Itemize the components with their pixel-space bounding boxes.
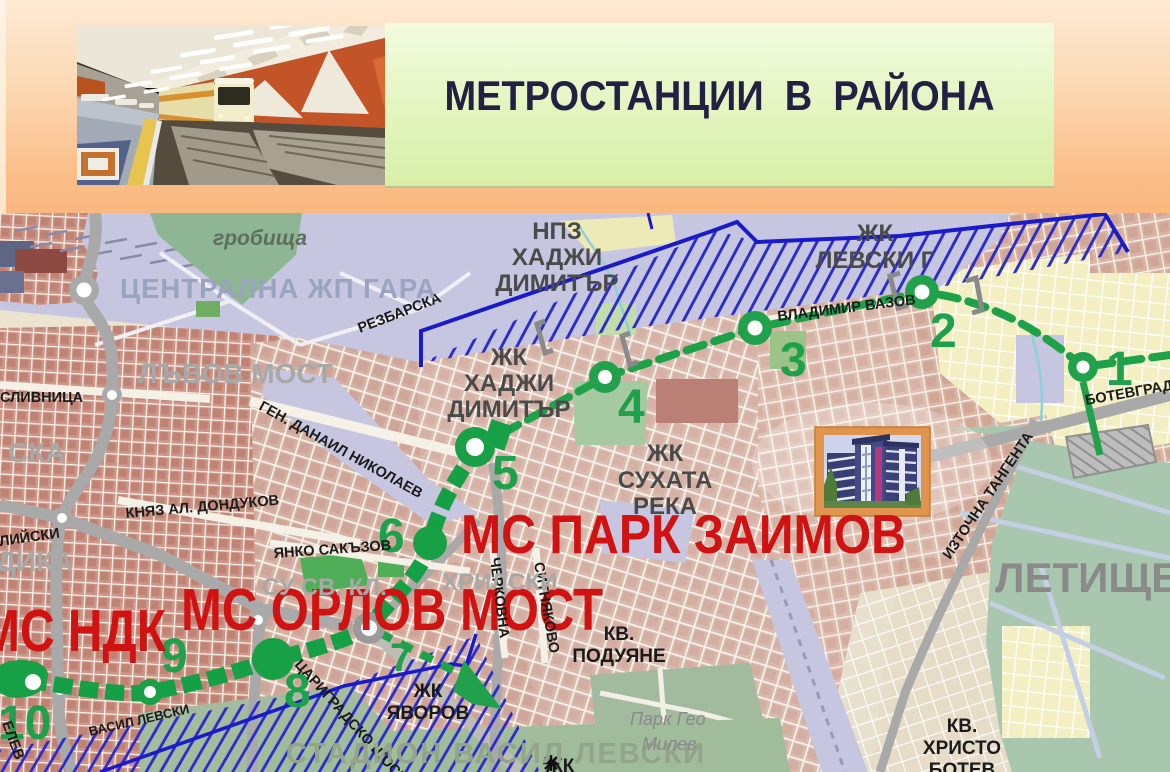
svg-text:5: 5: [492, 447, 519, 500]
svg-text:ДИМИТЪР: ДИМИТЪР: [495, 270, 618, 297]
svg-text:СКА: СКА: [8, 437, 66, 468]
svg-text:ЯВОРОВ: ЯВОРОВ: [387, 703, 470, 724]
svg-text:МС НДК: МС НДК: [0, 598, 167, 664]
svg-text:ЦЕНТРАЛНА ЖП ГАРА: ЦЕНТРАЛНА ЖП ГАРА: [120, 273, 437, 304]
svg-text:ЛЕВСКИ Г: ЛЕВСКИ Г: [816, 247, 935, 274]
svg-text:ДИМИТЪР: ДИМИТЪР: [447, 396, 570, 423]
svg-text:ХАДЖИ: ХАДЖИ: [512, 244, 602, 271]
svg-text:2: 2: [930, 305, 957, 358]
svg-text:Парк Гео: Парк Гео: [630, 709, 706, 729]
svg-text:6: 6: [378, 510, 405, 563]
svg-text:гробища: гробища: [213, 227, 307, 250]
svg-text:БОТЕВ: БОТЕВ: [929, 760, 995, 772]
svg-text:ПОДУЯНЕ: ПОДУЯНЕ: [572, 646, 665, 667]
svg-text:КВ.: КВ.: [604, 624, 635, 645]
svg-text:РЕКА: РЕКА: [633, 493, 697, 520]
svg-text:СЛИВНИЦА: СЛИВНИЦА: [0, 390, 84, 406]
svg-text:СУХАТА: СУХАТА: [618, 467, 713, 494]
svg-text:ЖК: ЖК: [413, 681, 443, 702]
svg-text:ЖК: ЖК: [646, 440, 684, 467]
svg-text:СУ СВ. КЛ.: СУ СВ. КЛ.: [262, 574, 387, 601]
svg-text:ХАДЖИ: ХАДЖИ: [464, 370, 554, 397]
svg-text:3: 3: [780, 334, 807, 387]
svg-text:КВ.: КВ.: [947, 716, 978, 737]
svg-text:ЖК: ЖК: [856, 220, 894, 247]
svg-text:ХРИЛСКИ: ХРИЛСКИ: [442, 569, 557, 596]
svg-text:4: 4: [618, 381, 645, 434]
svg-text:ХРИСТО: ХРИСТО: [923, 738, 1001, 759]
svg-text:ЛЪВОВ МОСТ: ЛЪВОВ МОСТ: [138, 358, 333, 389]
svg-text:Милев: Милев: [642, 734, 697, 754]
svg-text:ЖК: ЖК: [490, 344, 528, 371]
svg-text:НПЗ: НПЗ: [532, 218, 582, 245]
svg-text:ДИКА: ДИКА: [0, 546, 73, 577]
svg-text:ЛЕТИЩЕ: ЛЕТИЩЕ: [995, 554, 1170, 601]
